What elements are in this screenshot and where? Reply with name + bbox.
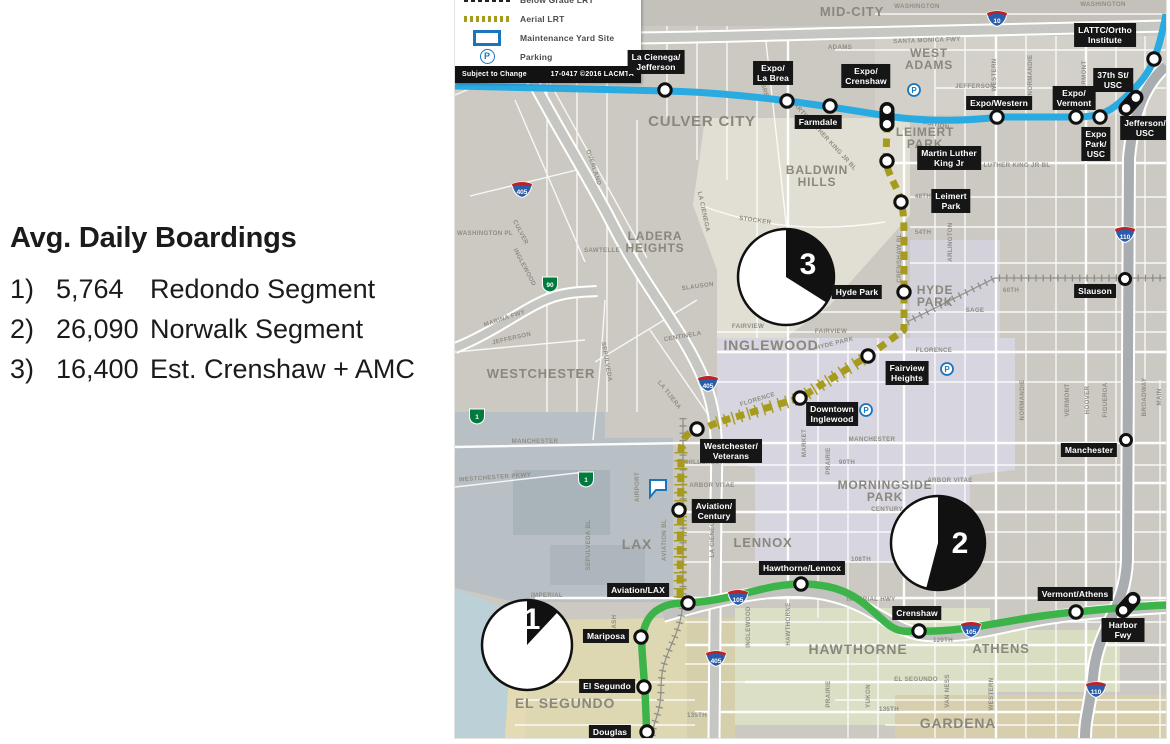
station-label-37th-st-usc-jefferson-usc: 37th St/ USC [1093, 68, 1133, 92]
boardings-list: 1)5,764Redondo Segment2)26,090Norwalk Se… [10, 269, 455, 389]
station-label-slauson: Slauson [1074, 284, 1116, 298]
boarding-item-label: Redondo Segment [150, 269, 375, 309]
boarding-item-label: Est. Crenshaw + AMC [150, 349, 415, 389]
legend-footer: Subject to Change 17-0417 ©2016 LACMTA [455, 66, 641, 83]
legend-label: Maintenance Yard Site [520, 33, 614, 43]
legend-label: Parking [520, 52, 553, 62]
station-label-farmdale: Farmdale [795, 115, 842, 129]
boarding-item: 1)5,764Redondo Segment [10, 269, 455, 309]
station-label-expo-la-brea: Expo/ La Brea [753, 61, 793, 85]
station-label-harbor-fwy: Harbor Fwy [1102, 618, 1145, 642]
boarding-item-number: 1) [10, 269, 56, 309]
station-label-hawthorne-lennox: Hawthorne/Lennox [759, 561, 845, 575]
boarding-item-value: 5,764 [56, 269, 150, 309]
station-label-douglas: Douglas [589, 725, 631, 738]
station-label-westchester-veterans: Westchester/ Veterans [700, 439, 762, 463]
station-label-martin-luther-king-jr: Martin Luther King Jr [917, 146, 981, 170]
transit-map: WASHINGTONWASHINGTONSANTA MONICA FWYADAM… [455, 0, 1166, 738]
boarding-item: 2)26,090Norwalk Segment [10, 309, 455, 349]
station-label-lattc-ortho-institute: LATTC/Ortho Institute [1074, 23, 1136, 47]
station-label-hyde-park: Hyde Park [832, 285, 882, 299]
station-label-expo-vermont: Expo/ Vermont [1053, 86, 1096, 110]
station-label-37th-st-usc-jefferson-usc-2: Jefferson/ USC [1120, 116, 1166, 140]
station-label-el-segundo: El Segundo [579, 679, 635, 693]
boardings-title: Avg. Daily Boardings [10, 222, 455, 255]
station-label-vermont-athens: Vermont/Athens [1038, 587, 1113, 601]
boarding-item-number: 3) [10, 349, 56, 389]
station-label-fairview-heights: Fairview Heights [886, 361, 929, 385]
station-label-mariposa: Mariposa [583, 629, 629, 643]
legend-item-parking: PParking [455, 47, 641, 66]
boarding-item-value: 16,400 [56, 349, 150, 389]
station-label-crenshaw: Crenshaw [892, 606, 941, 620]
boarding-item: 3)16,400Est. Crenshaw + AMC [10, 349, 455, 389]
station-label-expo-crenshaw: Expo/ Crenshaw [841, 64, 890, 88]
boarding-item-label: Norwalk Segment [150, 309, 363, 349]
station-label-manchester: Manchester [1061, 443, 1117, 457]
dash-olive-icon [464, 16, 510, 22]
station-label-leimert-park: Leimert Park [931, 189, 970, 213]
legend-label: Aerial LRT [520, 14, 565, 24]
station-label-downtown-inglewood: Downtown Inglewood [806, 402, 858, 426]
legend-subject-to-change: Subject to Change [462, 71, 527, 78]
station-label-expo-western: Expo/Western [966, 96, 1032, 110]
legend-item-dash-black: Below Grade LRT [455, 0, 641, 9]
boardings-panel: Avg. Daily Boardings 1)5,764Redondo Segm… [10, 222, 455, 389]
boarding-item-value: 26,090 [56, 309, 150, 349]
parking-icon: P [480, 49, 495, 64]
legend-item-dash-olive: Aerial LRT [455, 9, 641, 28]
yard-icon [473, 30, 501, 46]
legend-label: Below Grade LRT [520, 0, 594, 5]
station-label-la-cienega-jefferson: La Cienega/ Jefferson [628, 50, 685, 74]
legend-map-id: 17-0417 ©2016 LACMTA [551, 71, 634, 78]
station-label-expo-park-usc: Expo Park/ USC [1081, 127, 1110, 161]
legend-item-yard: Maintenance Yard Site [455, 28, 641, 47]
station-label-aviation-lax: Aviation/LAX [607, 583, 669, 597]
boarding-item-number: 2) [10, 309, 56, 349]
station-label-aviation-century: Aviation/ Century [692, 499, 736, 523]
dash-black-icon [464, 0, 510, 2]
map-legend: Below Grade LRTAerial LRTMaintenance Yar… [455, 0, 641, 83]
map-overlay: Below Grade LRTAerial LRTMaintenance Yar… [455, 0, 1166, 738]
